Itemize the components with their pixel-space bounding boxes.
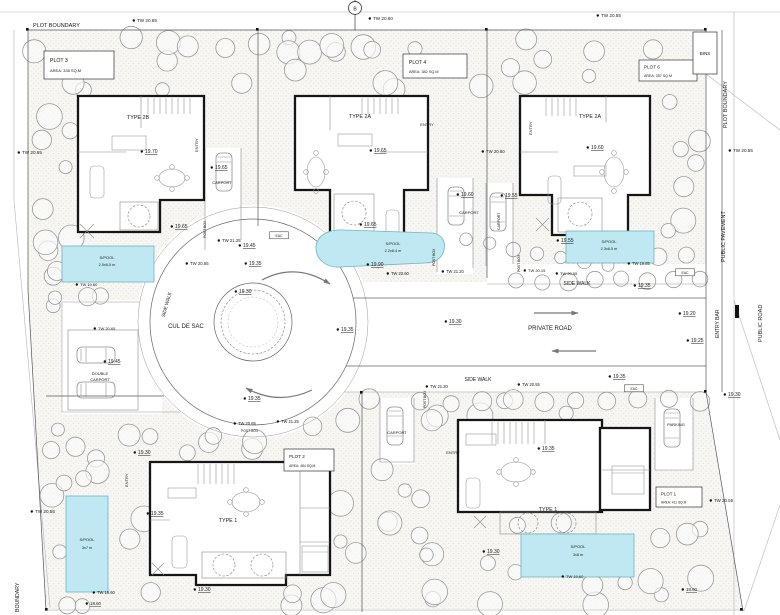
annotation-label: TW 20.65	[22, 150, 42, 155]
spot-marker	[367, 263, 369, 265]
pool-size-label: 2.2x8.4 m	[385, 249, 402, 253]
annotation-label: CARPORT	[212, 180, 232, 185]
spot-marker	[524, 269, 526, 271]
spot-marker	[609, 375, 611, 377]
spot-marker	[369, 17, 371, 19]
annotation-label: TW 20.60	[486, 149, 505, 154]
plot-name: PLOT 6	[644, 65, 660, 70]
road-label: PUBLIC ROAD	[758, 305, 764, 342]
tree	[629, 390, 647, 408]
annotation-label: TW 20.55	[560, 271, 578, 276]
spot-marker	[587, 146, 589, 148]
spot-level-label: 19.30	[198, 587, 211, 593]
plot-name: PLOT 3	[50, 58, 68, 64]
annotation-label: TW 21.25	[281, 419, 299, 424]
spot-marker	[337, 328, 339, 330]
tree	[120, 529, 140, 549]
spot-level-label: 19.35	[542, 446, 555, 452]
annotation-label: TW 21.20	[446, 269, 464, 274]
spot-marker	[277, 420, 279, 422]
tree	[674, 177, 694, 197]
annotation-label: TW 20.65	[238, 421, 256, 426]
road-label: ENTRY BAR	[715, 309, 721, 338]
annotation-label: POST BOX	[517, 254, 521, 272]
tree	[689, 130, 711, 152]
tree	[643, 40, 662, 59]
annotation-label: TW 20.65	[98, 326, 116, 331]
spot-marker	[104, 360, 106, 362]
house-type-label: TYPE 2A	[579, 114, 602, 120]
annotation-label: TW 20.55	[522, 382, 540, 387]
tree	[345, 543, 366, 564]
spot-marker	[710, 499, 712, 501]
spot-level-label: 19.65	[175, 224, 188, 230]
tree	[79, 288, 97, 306]
pool-label: S/POOL	[386, 241, 402, 246]
spot-level-label: 19.55	[561, 238, 574, 244]
spot-marker	[244, 397, 246, 399]
pool-label: S/POOL	[80, 537, 96, 542]
tree	[303, 417, 322, 436]
tree	[673, 141, 688, 156]
spot-level-label: 19.45	[108, 359, 121, 365]
annotation-label: PARKING	[667, 422, 685, 427]
house-type-label: TYPE 2A	[349, 114, 372, 120]
spot-level-label: 19.65	[374, 148, 387, 154]
tree	[37, 104, 63, 130]
tree	[118, 424, 140, 446]
plot-name: PLOT 4	[409, 60, 426, 66]
tree	[559, 406, 573, 420]
tree	[48, 291, 61, 304]
annotation-label: TW 20.55	[601, 13, 621, 18]
tree	[420, 548, 434, 562]
tree	[56, 475, 72, 491]
plot-area: AREA: 382 SQ.M	[409, 70, 439, 74]
tree	[530, 247, 543, 260]
plot-info-box-6: PLOT 6 AREA: 357 SQ.M	[639, 60, 697, 81]
annotation-label: DOUBLE	[92, 371, 109, 376]
house-type-label: TYPE 1	[219, 518, 238, 524]
bins-label: BINS	[700, 51, 711, 56]
tree	[473, 392, 492, 411]
annotation-label: TW 19.60	[80, 282, 98, 287]
tree	[535, 275, 550, 290]
tree	[32, 199, 53, 220]
spot-marker	[211, 166, 213, 168]
tree	[180, 445, 196, 461]
house-plot-2	[150, 462, 330, 585]
house-type-label: TYPE 2B	[127, 115, 150, 121]
tree	[480, 556, 495, 571]
spot-level-label: 18.60	[90, 601, 102, 606]
tree	[503, 390, 523, 410]
plot-area: AREA: 484 SQ.M	[289, 464, 316, 468]
tree	[421, 410, 442, 431]
plot-area: AREA: 338 SQ.M	[50, 68, 81, 73]
spot-level-label: 19.35	[638, 283, 651, 289]
spot-marker	[562, 575, 564, 577]
road-label: SIDE WALK	[464, 377, 492, 383]
tree	[62, 123, 78, 139]
tree	[76, 471, 92, 487]
tree	[501, 59, 519, 77]
pool-size-label: 2.5x6.5 m	[99, 263, 116, 267]
annotation-label: TW 20.65	[137, 18, 157, 23]
pool-label: S/POOL	[571, 544, 587, 549]
annotation-label: EAC	[276, 234, 284, 238]
tree	[141, 583, 160, 602]
spot-level-label: 19.65	[364, 222, 377, 228]
boundary-label: BOUNDARY	[15, 582, 21, 612]
tree	[284, 585, 302, 603]
tree	[75, 599, 90, 614]
tree	[535, 393, 554, 412]
spot-level-label: 19.60	[461, 192, 474, 198]
spot-marker	[360, 223, 362, 225]
spot-level-label: 19.35	[613, 374, 626, 380]
spot-marker	[679, 312, 681, 314]
annotation-label: ENTRY	[124, 473, 129, 487]
spot-marker	[141, 150, 143, 152]
spot-marker	[445, 320, 447, 322]
spot-marker	[186, 262, 188, 264]
spot-marker	[245, 262, 247, 264]
plot-area: AREA: 411 SQ.M	[661, 501, 687, 505]
boundary-label: PUBLIC PAVEMENT	[721, 211, 727, 262]
spot-marker	[133, 19, 135, 21]
tree	[32, 130, 51, 149]
spot-marker	[457, 193, 459, 195]
annotation-label: CARPORT	[387, 430, 407, 435]
tree	[177, 36, 198, 57]
tree	[484, 237, 496, 249]
plot-info-box-3: PLOT 3 AREA: 338 SQ.M	[44, 51, 114, 79]
annotation-label: TW 21.25	[222, 238, 241, 243]
tree	[284, 59, 306, 81]
annotation-label: TW 19.60	[566, 574, 584, 579]
spot-marker	[18, 151, 20, 153]
spot-level-label: 19.45	[243, 243, 256, 249]
annotation-label: ENTRY	[446, 450, 460, 455]
annotation-label: TW 19.60	[97, 590, 115, 595]
tree	[676, 523, 698, 545]
tree	[142, 429, 158, 445]
annotation-label: CARPORT	[459, 210, 479, 215]
road-label: SIDE WALK	[563, 281, 591, 287]
tree	[334, 535, 347, 548]
tree	[678, 247, 694, 263]
tree	[378, 511, 402, 535]
pool-size-label: 3x7 m	[82, 546, 92, 550]
spot-marker	[147, 512, 149, 514]
tree	[509, 273, 524, 288]
tree	[43, 442, 60, 459]
spot-marker	[235, 290, 237, 292]
plot-info-box-4: PLOT 4 AREA: 382 SQ.M	[403, 54, 467, 78]
spot-level-label: 19.60	[591, 145, 604, 151]
spot-marker	[86, 602, 88, 604]
house-type-label: TYPE 1	[539, 507, 558, 513]
spot-level-label: 19.30	[138, 450, 151, 456]
spot-level-label: 18.60	[686, 587, 698, 592]
spot-marker	[442, 270, 444, 272]
spot-level-label: 19.35	[248, 396, 261, 402]
tree	[660, 390, 677, 407]
spot-level-label: 19.30	[487, 549, 500, 555]
annotation-label: TW 20.65	[190, 261, 209, 266]
spot-marker	[597, 14, 599, 16]
plot-info-box-1: PLOT 1 AREA: 411 SQ.M	[656, 487, 702, 507]
tree	[320, 34, 344, 58]
tree	[651, 529, 670, 548]
spot-level-label: 19.30	[239, 289, 252, 295]
spot-marker	[76, 283, 78, 285]
spot-marker	[426, 385, 428, 387]
plot-name: PLOT 2	[289, 454, 305, 459]
spot-marker	[482, 150, 484, 152]
spot-marker	[94, 327, 96, 329]
spot-level-label: 19.55	[505, 193, 518, 199]
spot-marker	[724, 393, 726, 395]
spot-level-label: 19.30	[449, 319, 462, 325]
tree	[470, 74, 494, 98]
spot-marker	[687, 339, 689, 341]
tree	[336, 408, 360, 432]
spot-level-label: 19.35	[249, 261, 262, 267]
annotation-label: TW 19.85	[632, 261, 650, 266]
tree	[66, 437, 85, 456]
annotation-label: TW 20.55	[714, 498, 734, 503]
boundary-label: PLOT BOUNDARY	[33, 23, 80, 29]
annotation-label: TW 20.55	[733, 148, 753, 153]
tree	[688, 155, 705, 172]
annotation-label: ENTRY	[528, 121, 533, 135]
tree	[53, 545, 67, 559]
spot-level-label: 19.20	[683, 311, 696, 317]
tree	[33, 230, 58, 255]
spot-marker	[557, 239, 559, 241]
tree	[59, 597, 76, 614]
spot-marker	[194, 588, 196, 590]
tree	[582, 69, 595, 82]
spot-marker	[239, 244, 241, 246]
plot-area: AREA: 357 SQ.M	[644, 74, 672, 78]
tree	[582, 575, 603, 596]
pool-label: S/POOL	[100, 255, 116, 260]
tree	[412, 490, 430, 508]
tree	[321, 583, 346, 608]
tree	[216, 39, 235, 58]
tree	[509, 517, 525, 533]
spot-marker	[134, 451, 136, 453]
spot-marker	[93, 591, 95, 593]
annotation-label: TW 20.15	[528, 268, 546, 273]
annotation-label: ENTRY	[194, 138, 199, 152]
annotation-label: POST BOX	[241, 429, 259, 433]
tree	[156, 31, 180, 55]
tree	[584, 41, 605, 62]
spot-marker	[538, 447, 540, 449]
annotation-label: CARPORT	[497, 212, 501, 230]
spot-level-label: 19.90	[371, 262, 384, 268]
annotation-label: TW 21.20	[430, 384, 448, 389]
annotation-label: POST BOX	[423, 390, 427, 408]
site-plan-drawing: PLOT 3 AREA: 338 SQ.M PLOT 4 AREA: 382 S…	[0, 0, 780, 615]
spot-marker	[634, 284, 636, 286]
annotation-label: CARPORT	[90, 377, 110, 382]
tree	[232, 73, 252, 93]
tree	[411, 527, 428, 544]
tree	[328, 491, 354, 517]
annotation-label: EAC	[631, 387, 639, 391]
spot-marker	[682, 588, 684, 590]
tree	[662, 95, 677, 110]
tree	[661, 224, 675, 238]
annotation-label: TW 20.60	[373, 16, 393, 21]
spot-level-label: 19.25	[691, 338, 704, 344]
tree	[51, 423, 64, 436]
annotation-label: ENTRY	[420, 122, 434, 127]
tree	[156, 83, 170, 97]
tree	[364, 41, 381, 58]
spot-marker	[218, 239, 220, 241]
annotation-label: POST BOX	[432, 248, 436, 266]
entry-bar-gate	[735, 305, 739, 318]
spot-marker	[370, 149, 372, 151]
spot-level-label: 19.30	[728, 392, 741, 398]
spot-marker	[234, 422, 236, 424]
spot-marker	[387, 272, 389, 274]
tree	[23, 40, 46, 63]
tree	[618, 575, 632, 589]
tree	[248, 33, 270, 55]
tree	[460, 233, 473, 246]
pool-size-label: 2.3x6.5 m	[601, 247, 618, 251]
tree	[638, 569, 663, 594]
plot-info-box-2: PLOT 2 AREA: 484 SQ.M	[284, 449, 334, 471]
annotation-label: POST BOX	[203, 220, 207, 238]
spot-marker	[171, 225, 173, 227]
spot-level-label: 19.35	[151, 511, 164, 517]
road-label: PRIVATE ROAD	[528, 326, 572, 332]
tree	[398, 484, 411, 497]
spot-marker	[628, 262, 630, 264]
tree	[422, 579, 448, 605]
tree	[534, 50, 552, 68]
tree	[443, 396, 459, 412]
road-label: CUL DE SAC	[168, 324, 204, 330]
spot-level-label: 19.35	[341, 327, 354, 333]
tree	[59, 161, 72, 174]
annotation-label: EAC	[682, 271, 690, 275]
tree	[555, 251, 567, 263]
boundary-label: PLOT BOUNDARY	[723, 81, 729, 128]
tree	[551, 513, 571, 533]
annotation-label: TW 20.60	[391, 271, 409, 276]
tree	[516, 29, 537, 50]
tree	[598, 392, 616, 410]
spot-marker	[729, 149, 731, 151]
spot-level-label: 19.65	[215, 165, 228, 171]
pool-size-label: 3x8 m	[573, 553, 583, 557]
annotation-label: TW 20.55	[35, 509, 55, 514]
tree	[243, 429, 267, 453]
spot-level-label: 19.70	[145, 149, 158, 155]
plot-name: PLOT 1	[661, 492, 677, 497]
tree	[568, 392, 584, 408]
spot-marker	[483, 550, 485, 552]
tree	[478, 592, 503, 615]
bins-box: BINS	[693, 32, 717, 74]
spot-marker	[556, 272, 558, 274]
pool-label: S/POOL	[602, 239, 618, 244]
pool-plot-2	[66, 496, 108, 592]
tree	[373, 71, 398, 96]
spot-marker	[518, 383, 520, 385]
spot-marker	[31, 510, 33, 512]
spot-marker	[501, 194, 503, 196]
